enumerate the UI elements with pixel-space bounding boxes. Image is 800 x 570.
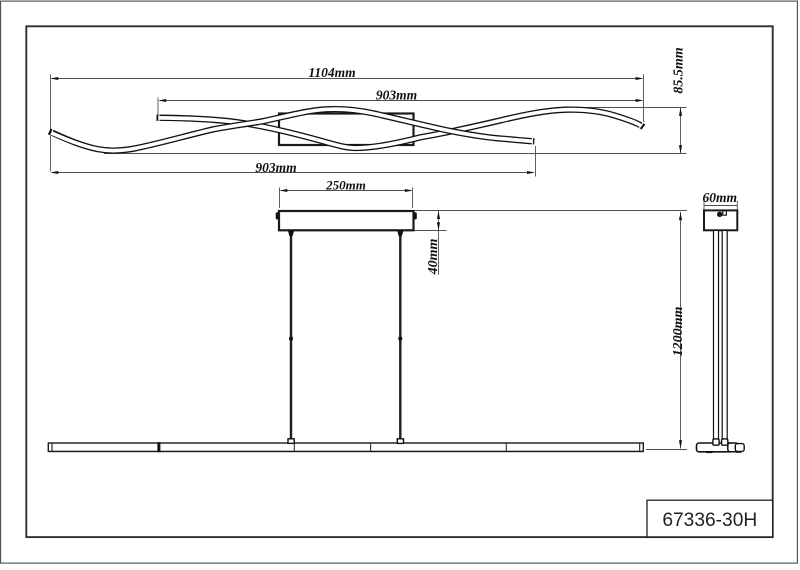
- svg-text:40mm: 40mm: [426, 239, 441, 276]
- svg-text:85.5mm: 85.5mm: [672, 47, 687, 93]
- svg-text:60mm: 60mm: [703, 190, 738, 205]
- svg-text:1104mm: 1104mm: [308, 65, 355, 80]
- svg-text:250mm: 250mm: [325, 178, 366, 193]
- svg-text:903mm: 903mm: [255, 160, 296, 175]
- svg-text:903mm: 903mm: [376, 88, 417, 103]
- svg-text:1200mm: 1200mm: [671, 307, 686, 357]
- svg-text:67336-30H: 67336-30H: [662, 510, 757, 531]
